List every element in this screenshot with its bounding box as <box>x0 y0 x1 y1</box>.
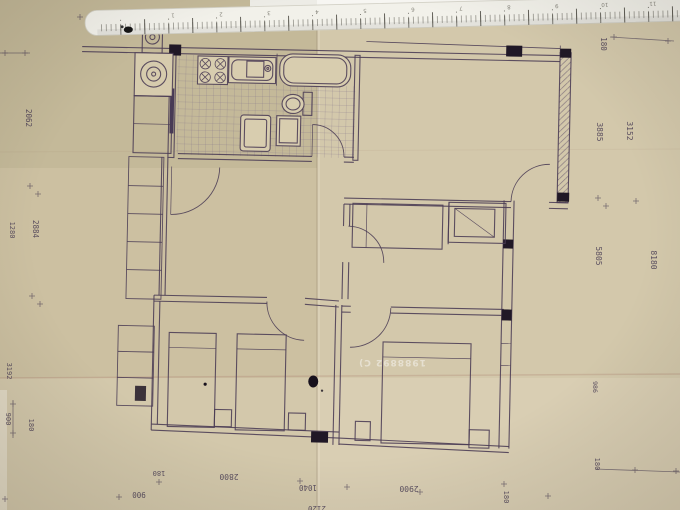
dimension-label: 8180 <box>649 250 658 269</box>
dimension-label: 2062 <box>24 109 33 127</box>
ruler-number: 1 <box>171 12 175 18</box>
dimension-label: 2900 <box>399 484 418 493</box>
dimension-label: 180 <box>593 458 601 471</box>
dimension-label: 900 <box>132 490 146 499</box>
paper-edge <box>0 390 7 510</box>
dimension-label: 180 <box>599 37 608 51</box>
photo-watermark: 1988892 C) <box>358 357 426 367</box>
dimension-label: 1280 <box>8 222 16 239</box>
dimension-label: 180 <box>153 469 166 477</box>
ruler-number: 11 <box>649 0 656 6</box>
dimension-label: 180 <box>27 419 35 432</box>
dimension-label: 3192 <box>5 363 13 380</box>
dimension-label: 3152 <box>625 121 634 140</box>
floor-plan-photo: 900 180 2800 1040 2120 2900 180 180 2062… <box>0 0 680 510</box>
floor-plan-canvas: 900 180 2800 1040 2120 2900 180 180 2062… <box>0 0 680 510</box>
hatched-wall <box>557 53 571 203</box>
laundry-sink <box>134 53 173 97</box>
ruler-number: 10 <box>601 1 609 7</box>
dimension-label: 2120 <box>307 504 326 510</box>
ruler-number: 2 <box>219 10 223 16</box>
dimension-label: 180 <box>502 491 510 504</box>
dimension-label: 2800 <box>219 472 238 481</box>
toilet <box>282 94 304 113</box>
dimension-label: 5805 <box>594 246 603 265</box>
dimension-label: 3885 <box>595 122 604 141</box>
dimension-label: 900 <box>4 413 12 426</box>
dimension-label: 1040 <box>298 483 317 492</box>
dimension-label: 986 <box>591 381 599 393</box>
dimension-label: 2884 <box>31 220 40 239</box>
